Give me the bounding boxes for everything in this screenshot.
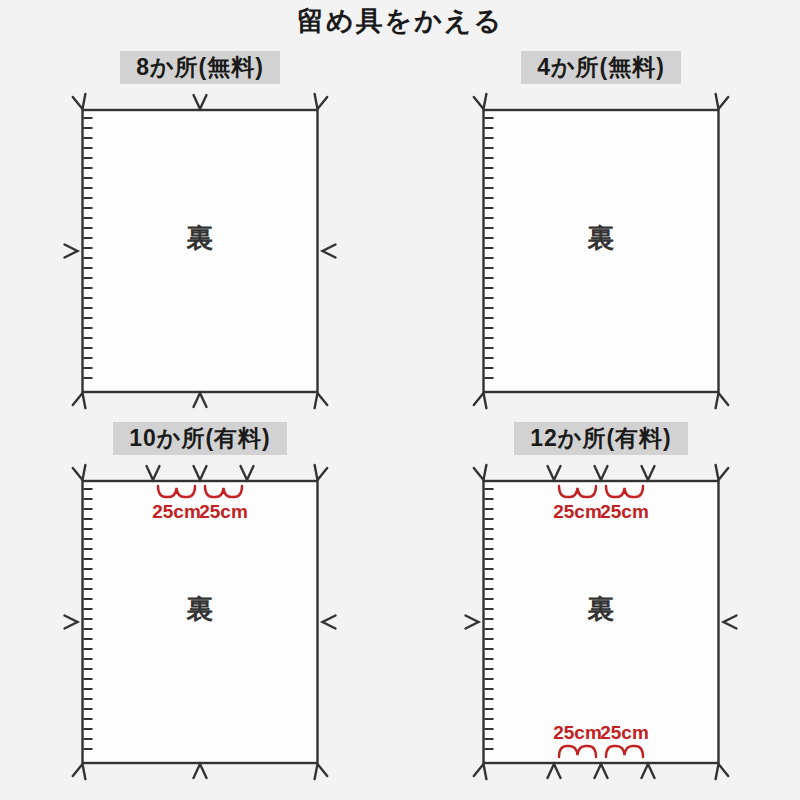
- stitch-ticks: [485, 489, 494, 749]
- measurement-label-top: 25cm: [152, 501, 201, 522]
- back-side-label: 裏: [587, 223, 615, 253]
- fastener-arrow-top: [73, 94, 89, 111]
- fastener-arrow-top: [595, 466, 608, 480]
- stitch-ticks: [84, 489, 93, 749]
- fastener-arrow-bottom: [474, 391, 490, 408]
- futon-back-diagram: 裏25cm25cm25cm25cm: [456, 455, 746, 787]
- fastener-arrow-bottom: [73, 391, 89, 408]
- fastener-arrow-top: [311, 94, 327, 111]
- fastener-arrow-top: [194, 95, 207, 109]
- fastener-arrow-bottom: [548, 764, 561, 778]
- panel-4-places-free: 4か所(無料)裏: [456, 46, 746, 416]
- measurement-label-top: 25cm: [553, 501, 602, 522]
- fastener-arrow-top: [241, 466, 254, 480]
- back-side-label: 裏: [186, 223, 214, 253]
- panel-header: 8か所(無料): [55, 51, 345, 84]
- fastener-arrow-right: [724, 616, 737, 629]
- measurement-label-top: 25cm: [600, 501, 649, 522]
- fastener-arrow-left: [65, 245, 78, 258]
- panel-header: 4か所(無料): [456, 51, 746, 84]
- measurement-label-top: 25cm: [199, 501, 248, 522]
- fastener-arrow-top: [474, 94, 490, 111]
- fastener-arrow-top: [712, 94, 728, 111]
- fastener-arrow-top: [642, 466, 655, 480]
- fastener-arrow-right: [323, 616, 336, 629]
- panel-10-places-paid: 10か所(有料)裏25cm25cm: [55, 417, 345, 787]
- page-title: 留め具をかえる: [0, 3, 800, 39]
- panel-title-label: 12か所(有料): [514, 422, 687, 455]
- futon-back-diagram: 裏: [456, 84, 746, 416]
- panel-8-places-free: 8か所(無料)裏: [55, 46, 345, 416]
- measurement-label-bottom: 25cm: [600, 722, 649, 743]
- measurement-label-bottom: 25cm: [553, 722, 602, 743]
- fastener-arrow-bottom: [311, 762, 327, 779]
- panel-header: 10か所(有料): [55, 422, 345, 455]
- back-side-label: 裏: [587, 594, 615, 624]
- futon-back-diagram: 裏25cm25cm: [55, 455, 345, 787]
- panel-12-places-paid: 12か所(有料)裏25cm25cm25cm25cm: [456, 417, 746, 787]
- panel-title-label: 4か所(無料): [521, 51, 681, 84]
- fastener-arrow-bottom: [642, 764, 655, 778]
- fastener-arrow-right: [323, 245, 336, 258]
- fastener-arrow-bottom: [311, 391, 327, 408]
- fastener-arrow-top: [147, 466, 160, 480]
- futon-back-diagram: 裏: [55, 84, 345, 416]
- fastener-arrow-bottom: [194, 393, 207, 407]
- fastener-arrow-top: [311, 465, 327, 482]
- panel-title-label: 8か所(無料): [120, 51, 280, 84]
- fastener-arrow-top: [474, 465, 490, 482]
- fastener-arrow-bottom: [712, 391, 728, 408]
- panel-title-label: 10か所(有料): [113, 422, 286, 455]
- fastener-arrow-left: [65, 616, 78, 629]
- fastener-arrow-top: [194, 466, 207, 480]
- fastener-arrow-bottom: [194, 764, 207, 778]
- fastener-arrow-bottom: [595, 764, 608, 778]
- back-side-label: 裏: [186, 594, 214, 624]
- fastener-arrow-top: [712, 465, 728, 482]
- fastener-arrow-bottom: [73, 762, 89, 779]
- fastener-arrow-top: [548, 466, 561, 480]
- fastener-arrow-bottom: [712, 762, 728, 779]
- panel-header: 12か所(有料): [456, 422, 746, 455]
- stitch-ticks: [84, 118, 93, 378]
- fastener-arrow-bottom: [474, 762, 490, 779]
- fastener-arrow-top: [73, 465, 89, 482]
- stitch-ticks: [485, 118, 494, 378]
- fastener-arrow-left: [466, 616, 479, 629]
